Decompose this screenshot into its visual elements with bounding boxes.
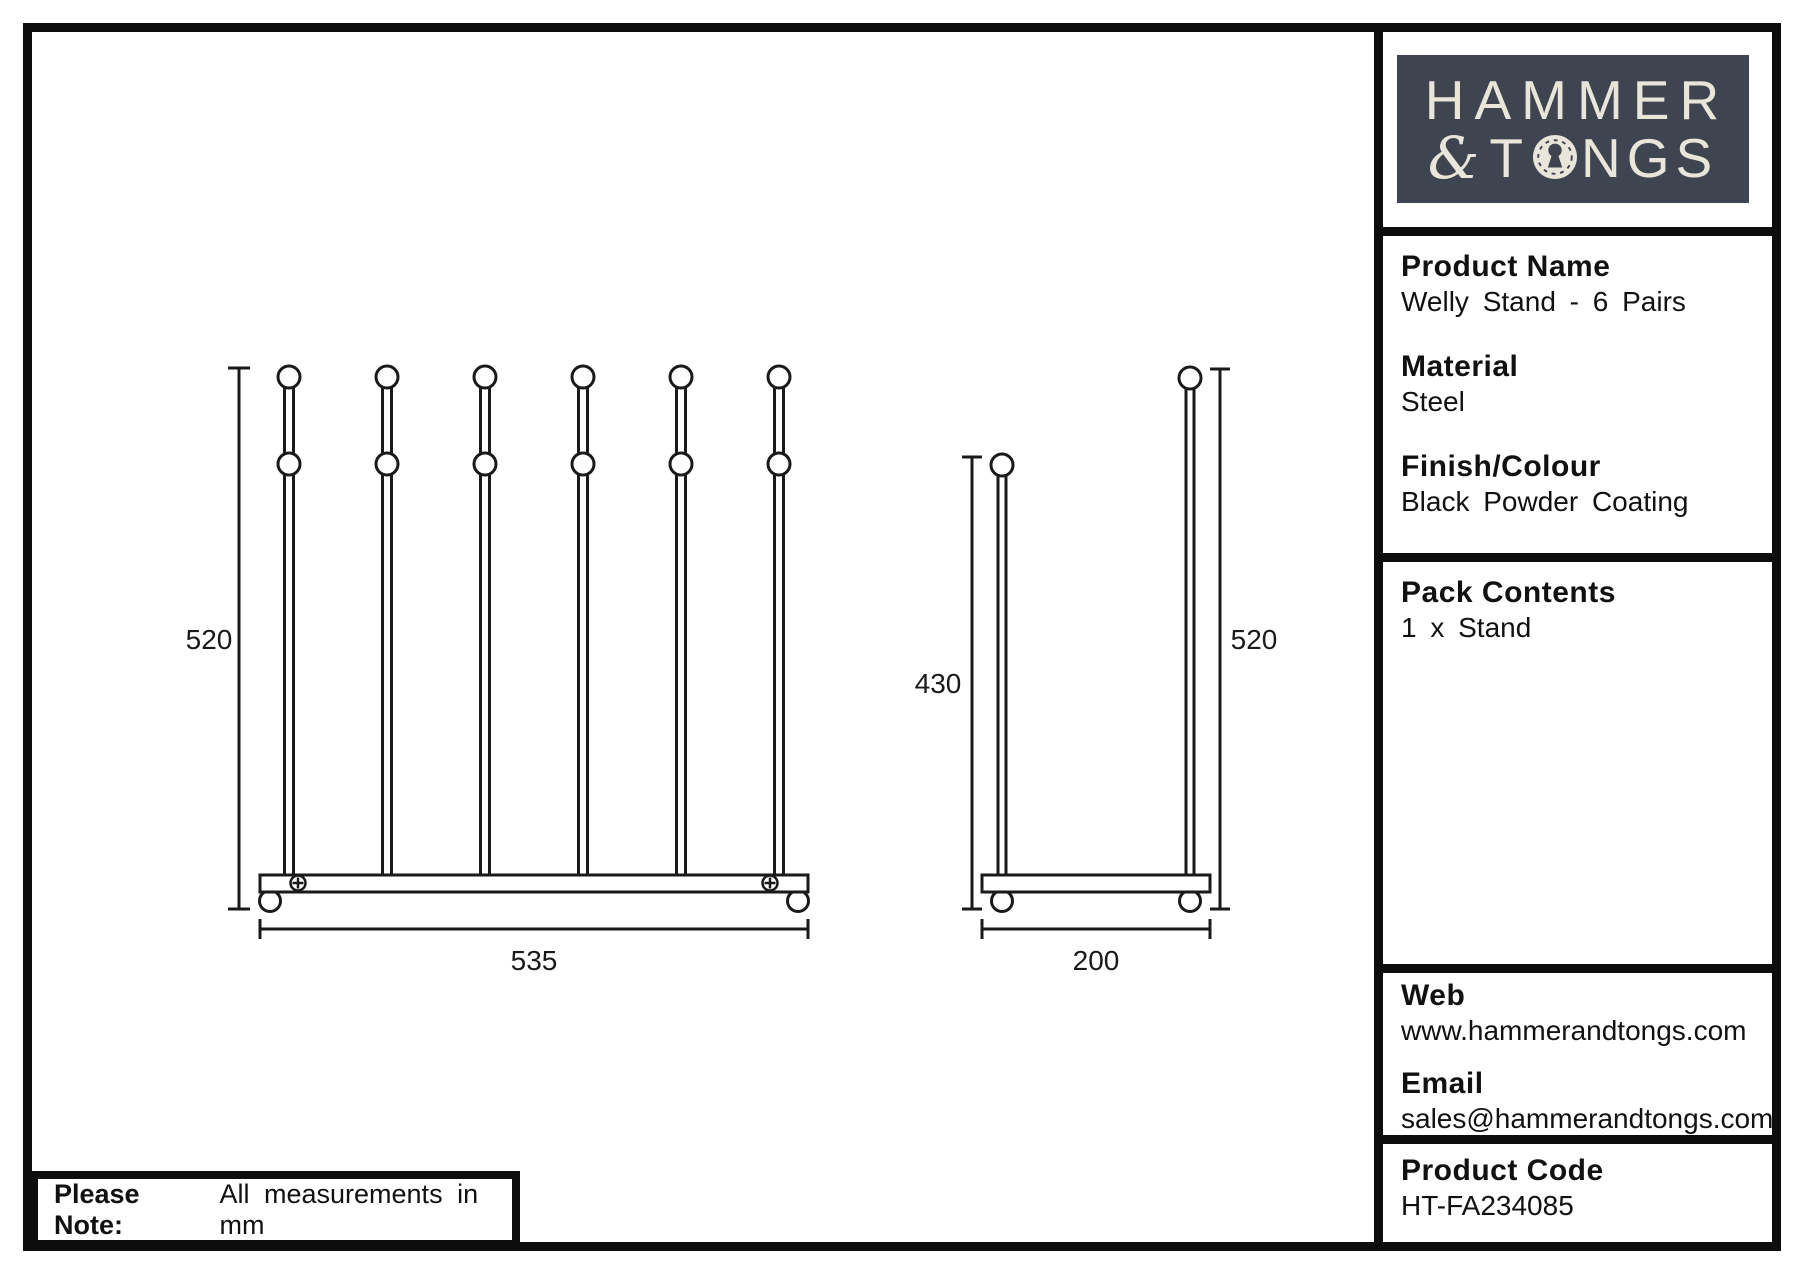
front-poles: [278, 366, 790, 875]
welly-pole-ball: [572, 453, 594, 475]
email-group: Email sales@hammerandtongs.com: [1401, 1069, 1760, 1135]
product-name-label: Product Name: [1401, 252, 1760, 282]
finish-group: Finish/Colour Black Powder Coating: [1401, 452, 1760, 518]
front-foot-left: [260, 891, 281, 912]
finish-colour-value: Black Powder Coating: [1401, 486, 1760, 518]
welly-pole-ball: [376, 366, 398, 388]
product-code-value: HT-FA234085: [1401, 1190, 1760, 1222]
keyhole-icon: [1532, 134, 1578, 180]
logo-text-tongs: & T NGS: [1428, 129, 1718, 187]
side-back-pole-dim-label: 520: [1231, 624, 1278, 655]
front-width-dimension: 535: [260, 919, 808, 976]
side-front-pole-dim-label: 430: [915, 668, 962, 699]
welly-pole-ball: [474, 366, 496, 388]
front-foot-right: [788, 891, 809, 912]
pack-contents-group: Pack Contents 1 x Stand: [1401, 578, 1760, 644]
screw-left-icon: [291, 876, 306, 891]
side-foot-left: [992, 891, 1013, 912]
welly-pole-ball: [670, 366, 692, 388]
email-value[interactable]: sales@hammerandtongs.com: [1401, 1103, 1760, 1135]
logo-letters-ngs: NGS: [1581, 129, 1718, 187]
side-front-pole-dimension: 430: [915, 457, 982, 909]
hammer-and-tongs-logo: HAMMER & T NGS: [1397, 55, 1749, 203]
web-value[interactable]: www.hammerandtongs.com: [1401, 1015, 1760, 1047]
side-front-pole-ball: [991, 454, 1013, 476]
pack-contents-label: Pack Contents: [1401, 578, 1760, 608]
product-name-group: Product Name Welly Stand - 6 Pairs: [1401, 252, 1760, 318]
material-value: Steel: [1401, 386, 1760, 418]
front-height-dimension: 520: [186, 368, 250, 909]
finish-colour-label: Finish/Colour: [1401, 452, 1760, 482]
welly-pole-ball: [572, 366, 594, 388]
front-base-bar: [260, 875, 808, 892]
product-info-panel: Product Name Welly Stand - 6 Pairs Mater…: [1374, 227, 1781, 562]
welly-pole-ball: [278, 366, 300, 388]
contact-panel: Web www.hammerandtongs.com Email sales@h…: [1374, 964, 1781, 1144]
welly-pole-ball: [376, 453, 398, 475]
side-depth-dimension: 200: [982, 919, 1210, 976]
welly-pole-ball: [474, 453, 496, 475]
welly-pole-ball: [768, 366, 790, 388]
logo-ampersand: &: [1428, 130, 1486, 186]
front-width-dim-label: 535: [511, 945, 558, 976]
front-view: 520 535: [186, 366, 809, 976]
note-label: Please Note:: [54, 1179, 209, 1241]
note-box: Please Note: All measurements in mm: [30, 1171, 520, 1248]
logo-panel: HAMMER & T NGS: [1374, 23, 1781, 236]
side-foot-right: [1180, 891, 1201, 912]
product-code-label: Product Code: [1401, 1156, 1760, 1186]
pack-contents-value: 1 x Stand: [1401, 612, 1760, 644]
side-back-pole-ball: [1179, 367, 1201, 389]
pack-contents-panel: Pack Contents 1 x Stand: [1374, 553, 1781, 973]
logo-letter-t: T: [1489, 129, 1529, 187]
material-group: Material Steel: [1401, 352, 1760, 418]
welly-pole-ball: [670, 453, 692, 475]
front-height-dim-label: 520: [186, 624, 233, 655]
side-view: 430 520 200: [915, 367, 1278, 976]
welly-pole-ball: [278, 453, 300, 475]
email-label: Email: [1401, 1069, 1760, 1099]
material-label: Material: [1401, 352, 1760, 382]
web-label: Web: [1401, 981, 1760, 1011]
screw-right-icon: [763, 876, 778, 891]
product-name-value: Welly Stand - 6 Pairs: [1401, 286, 1760, 318]
side-base-bar: [982, 875, 1210, 892]
note-text: All measurements in mm: [219, 1179, 512, 1241]
welly-pole-ball: [768, 453, 790, 475]
web-group: Web www.hammerandtongs.com: [1401, 981, 1760, 1047]
logo-text-hammer: HAMMER: [1417, 71, 1729, 129]
drawing-area: 520 535: [23, 23, 1383, 1251]
product-code-panel: Product Code HT-FA234085: [1374, 1135, 1781, 1251]
side-depth-dim-label: 200: [1073, 945, 1120, 976]
spec-sheet-page: 520 535: [0, 0, 1800, 1273]
product-code-group: Product Code HT-FA234085: [1401, 1156, 1760, 1222]
side-back-pole-dimension: 520: [1210, 369, 1277, 909]
